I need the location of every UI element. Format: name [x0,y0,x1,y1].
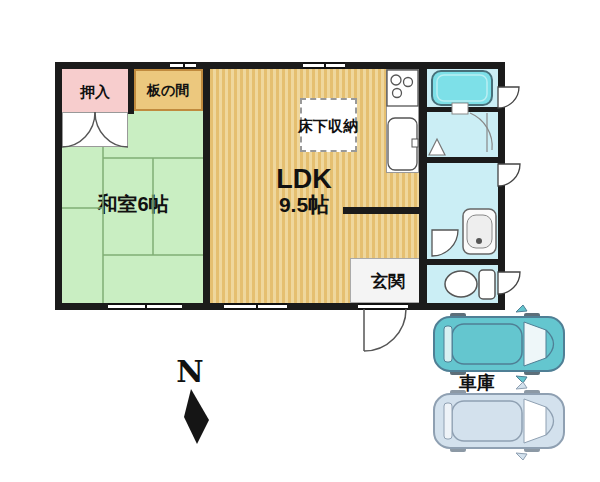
washbasin-icon [463,209,496,254]
washroom-corner-marker-icon [429,139,445,155]
toilet-icon [445,270,495,299]
stove-icon [387,70,418,106]
floor-plan: 押入 板の間 和室6帖 LDK 9.5帖 床下収納 玄関 車庫 N [0,0,600,482]
car-teal-icon [434,305,564,383]
door-genkan-washroom-icon [432,230,458,256]
door-arc-bathroom-icon [498,87,519,108]
washroom-door-arc-icon [470,113,492,152]
door-arc-washbasin-icon [498,164,520,186]
bath-door-leaf-icon [452,103,468,114]
tatami-lines [62,147,203,303]
fixtures-overlay [0,0,600,482]
entrance-door-icon [364,309,406,351]
door-arc-toilet-icon [498,272,520,294]
car-blue-icon [434,382,564,460]
kitchen-sink-icon [388,118,418,170]
closet-door-arcs-icon [62,112,128,147]
north-arrow-icon [184,389,209,444]
exterior-door-arcs [498,87,520,294]
